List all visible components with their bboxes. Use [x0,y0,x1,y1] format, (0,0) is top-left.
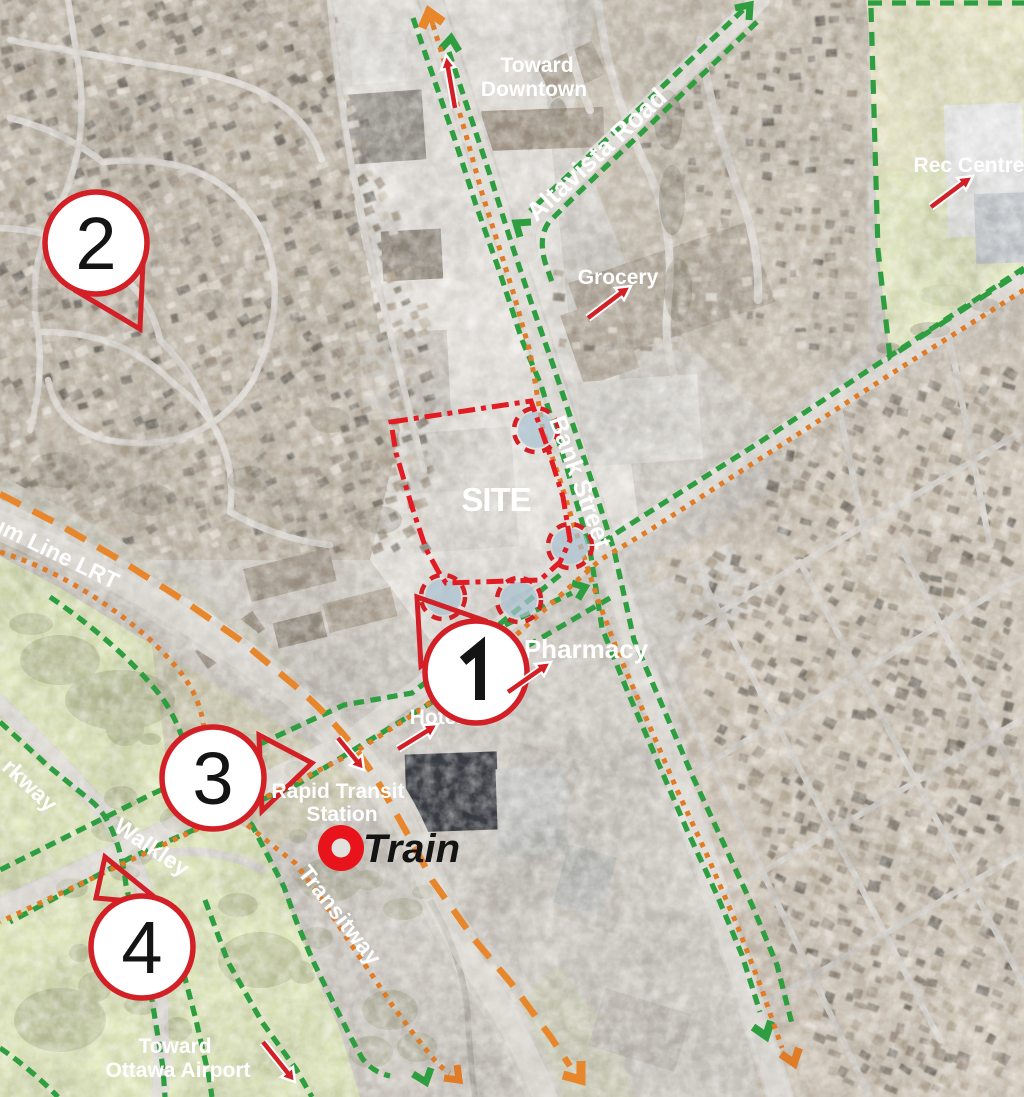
svg-text:Downtown: Downtown [481,78,587,101]
svg-text:Grocery: Grocery [578,266,659,289]
svg-text:Rapid Transit: Rapid Transit [271,780,404,803]
svg-text:2: 2 [75,202,116,285]
svg-text:Rec Centre: Rec Centre [914,154,1024,177]
svg-text:Toward: Toward [138,1035,211,1058]
svg-text:Pharmacy: Pharmacy [524,634,649,664]
svg-text:SITE: SITE [461,481,530,518]
svg-text:Ottawa Airport: Ottawa Airport [105,1059,250,1082]
svg-text:Station: Station [306,803,377,826]
svg-text:Toward: Toward [500,54,573,77]
svg-text:3: 3 [192,737,233,820]
svg-text:Train: Train [363,827,460,871]
svg-text:4: 4 [121,906,162,989]
